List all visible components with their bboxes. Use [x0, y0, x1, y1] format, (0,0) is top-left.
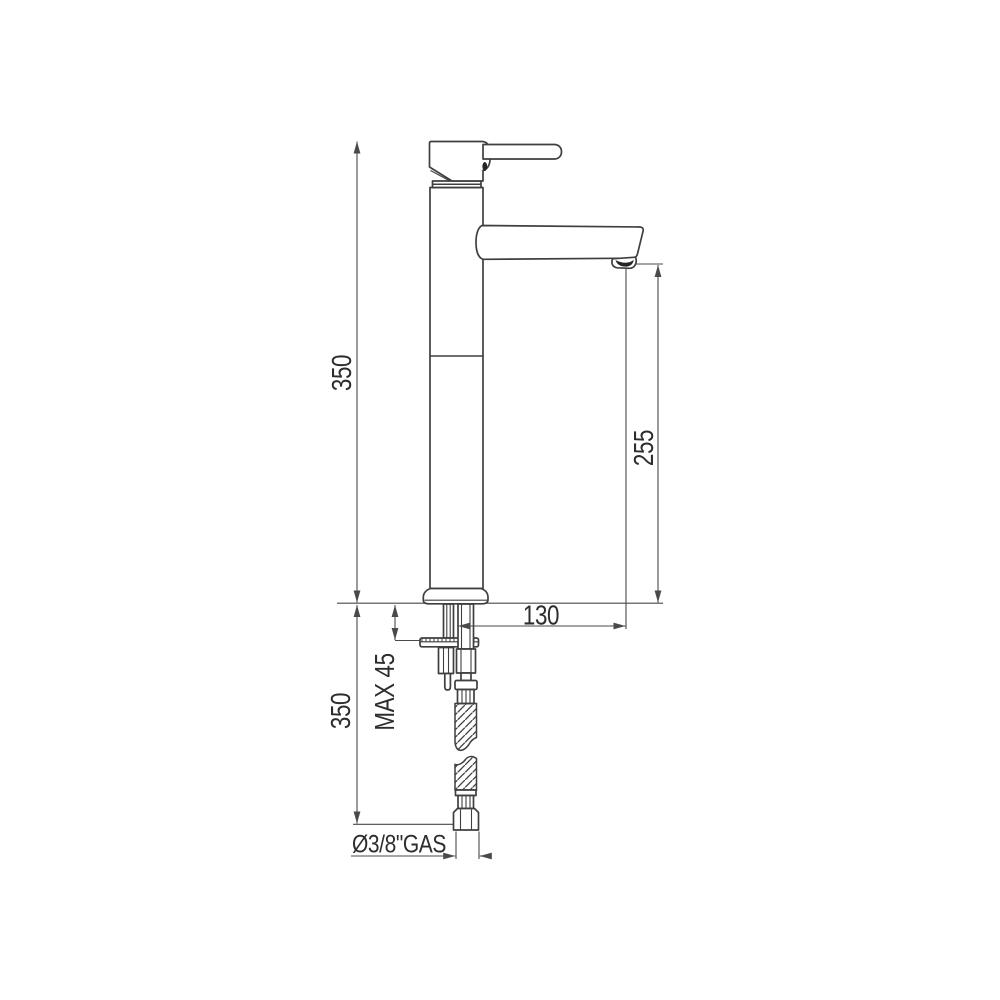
- hose-collar: [455, 681, 477, 690]
- dim-label-outlet-height: 255: [629, 430, 660, 466]
- flex-hose-upper: [455, 704, 477, 751]
- hose-nut: [454, 809, 479, 831]
- lever-pivot: [482, 162, 487, 171]
- faucet-body-column: [430, 188, 483, 589]
- faucet-spout: [476, 226, 643, 260]
- valve-block: [457, 649, 476, 673]
- supply-valve-body: [455, 604, 477, 704]
- valve-neck: [461, 673, 471, 681]
- dim-label-total-height: 350: [327, 355, 358, 391]
- stud-nut: [439, 648, 454, 674]
- dim-label-spout-reach: 130: [523, 600, 559, 631]
- faucet-geometry: [420, 142, 643, 831]
- faucet-dimension-drawing: 350 255 130 MAX 45 350 Ø3/8"GAS: [0, 0, 1000, 1000]
- dim-label-max-deck: MAX 45: [370, 653, 401, 731]
- dimension-labels: 350 255 130 MAX 45 350 Ø3/8"GAS: [326, 355, 660, 858]
- reference-lines: [337, 264, 663, 859]
- dim-label-hose-length: 350: [326, 693, 357, 729]
- flex-hose-lower: [455, 757, 477, 790]
- base-flange: [423, 589, 488, 604]
- technical-drawing-canvas: 350 255 130 MAX 45 350 Ø3/8"GAS: [0, 0, 1000, 1000]
- stud-tip: [445, 674, 451, 691]
- handle-lever: [483, 145, 562, 160]
- dim-label-supply-thread: Ø3/8"GAS: [352, 830, 446, 858]
- flex-hose: [454, 704, 479, 831]
